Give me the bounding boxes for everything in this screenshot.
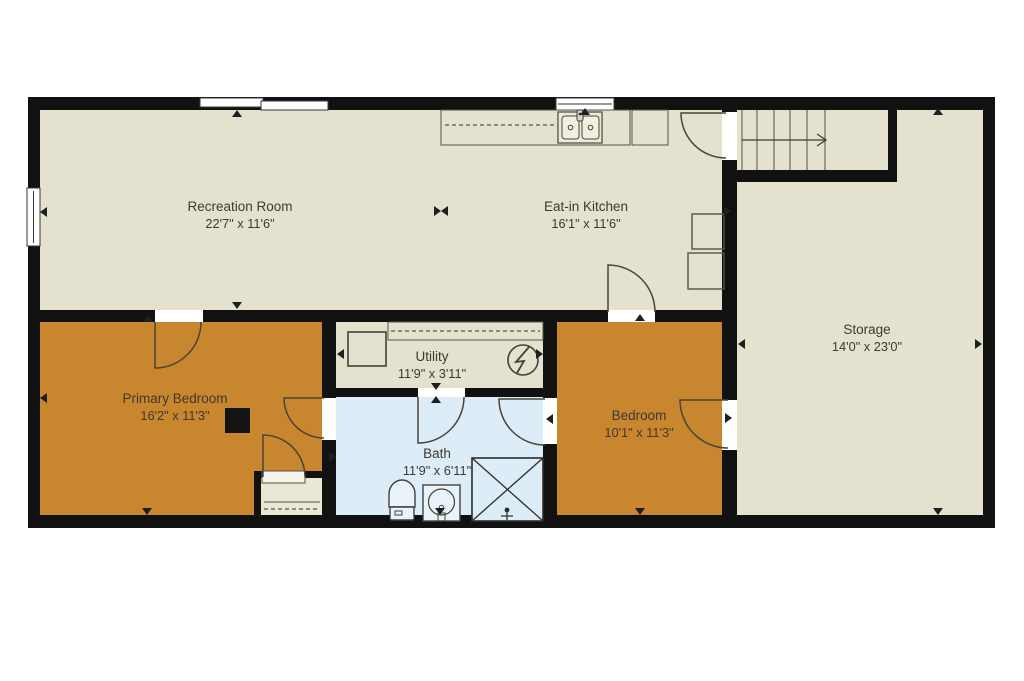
bedroom-floor [557, 322, 722, 515]
wall-stair-right [888, 110, 897, 182]
primary-bath-door-opening [322, 398, 336, 440]
wall-closet-left [254, 471, 261, 515]
utility-bath-door-opening [418, 388, 465, 397]
bedroom-storage-door-opening [722, 400, 737, 450]
wall-right [983, 97, 995, 528]
closet-opening [262, 471, 305, 483]
closet-floor [261, 478, 322, 515]
window-icon [261, 101, 328, 110]
toilet-icon [389, 480, 415, 507]
kitchen-counter [632, 110, 668, 145]
kitchen-stair-door-opening [722, 112, 737, 160]
sink-bowl [562, 116, 579, 139]
chimney-icon [225, 408, 250, 433]
window-icon [200, 98, 263, 107]
floorplan-canvas: Recreation Room 22'7" x 11'6" Eat-in Kit… [0, 0, 1024, 681]
faucet-icon [577, 110, 583, 121]
wall-top [28, 97, 995, 110]
sink-bowl [582, 116, 599, 139]
wall-stair-bottom [722, 170, 897, 182]
floorplan-drawing [0, 0, 1024, 681]
primary-door-opening [155, 310, 203, 322]
kitchen-bedroom-door-opening [608, 310, 655, 322]
